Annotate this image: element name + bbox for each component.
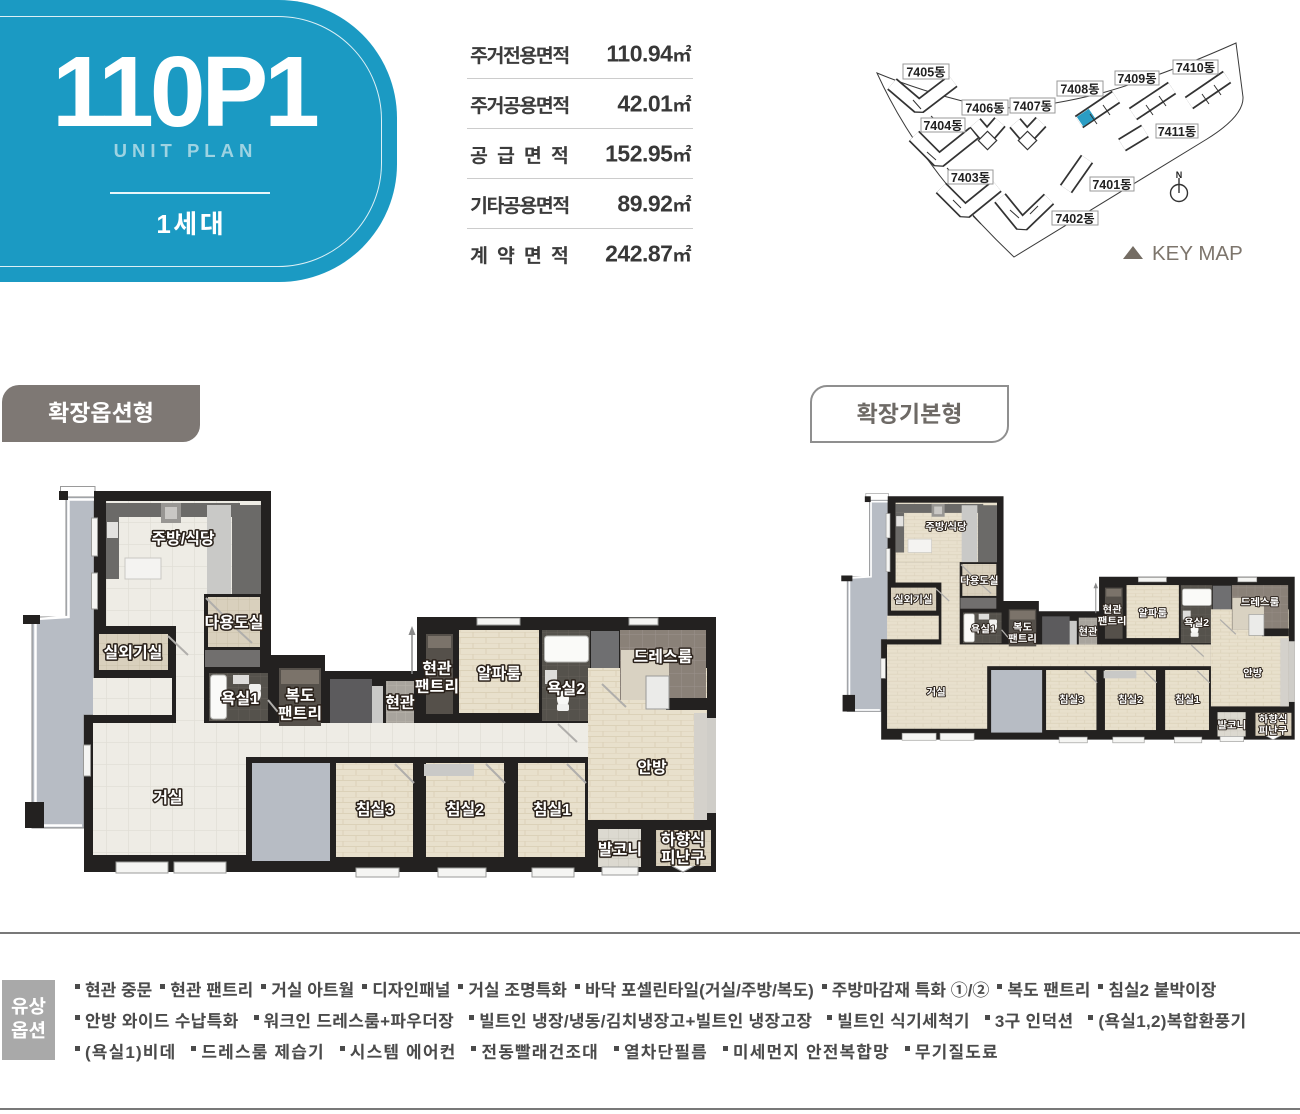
svg-text:N: N	[1176, 170, 1183, 180]
svg-text:7406동: 7406동	[965, 102, 1004, 116]
svg-text:7410동: 7410동	[1176, 61, 1215, 75]
svg-text:7409동: 7409동	[1117, 72, 1156, 86]
svg-text:7408동: 7408동	[1060, 83, 1099, 97]
svg-text:7411동: 7411동	[1158, 125, 1197, 139]
svg-text:7402동: 7402동	[1055, 212, 1094, 226]
svg-text:7403동: 7403동	[951, 171, 990, 185]
svg-text:7405동: 7405동	[906, 66, 945, 80]
svg-text:7401동: 7401동	[1092, 178, 1131, 192]
svg-text:KEY MAP: KEY MAP	[1152, 242, 1243, 265]
svg-text:7407동: 7407동	[1013, 100, 1052, 114]
svg-text:7404동: 7404동	[923, 119, 962, 133]
